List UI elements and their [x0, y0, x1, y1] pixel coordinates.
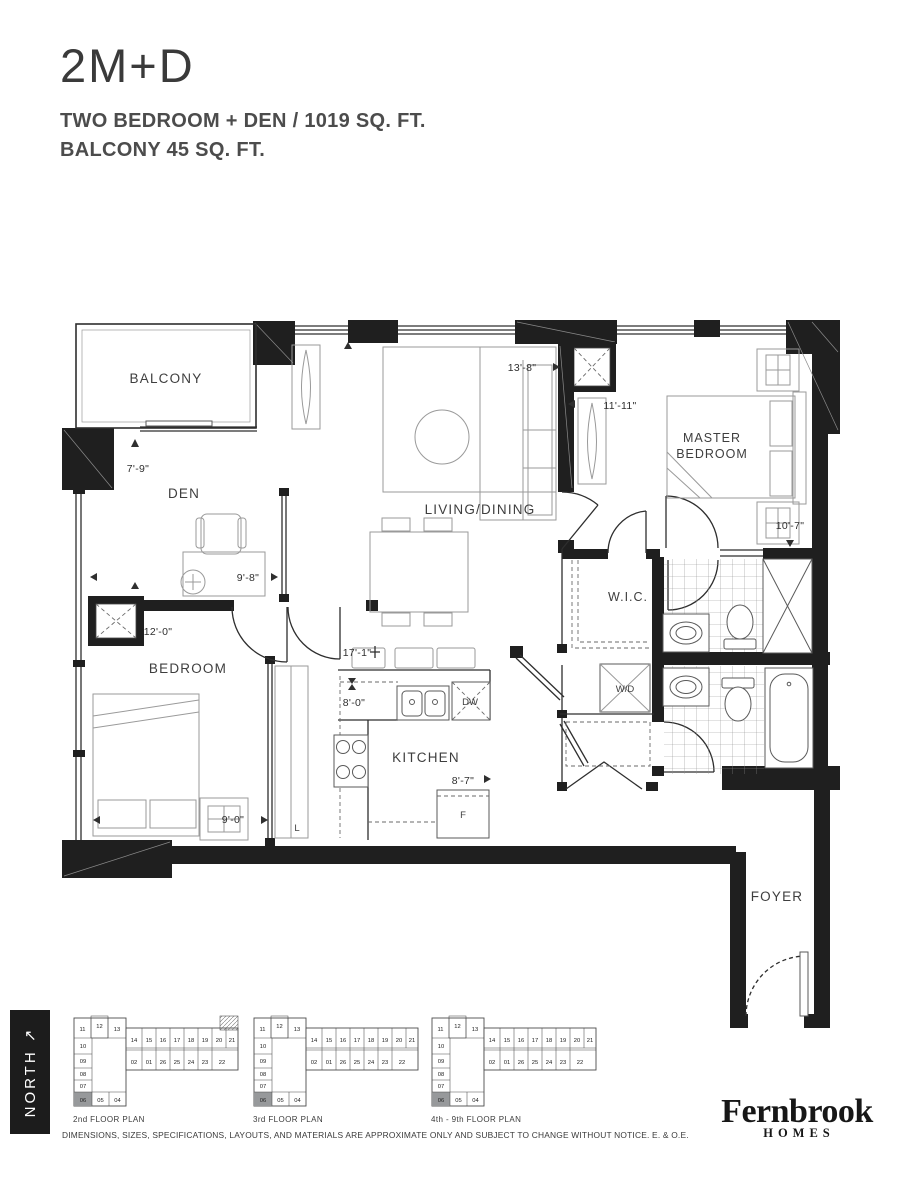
- unit: 17: [354, 1038, 360, 1044]
- kitchen-counter: [334, 648, 490, 840]
- unit: 07: [260, 1084, 266, 1090]
- unit: 25: [174, 1060, 180, 1066]
- bedroom-door: [232, 607, 287, 662]
- unit: 22: [399, 1060, 405, 1066]
- label-dishwasher: DW: [462, 697, 478, 708]
- unit: 26: [518, 1060, 524, 1066]
- unit: 05: [97, 1098, 103, 1104]
- label-master-line2: BEDROOM: [676, 447, 748, 461]
- unit: 13: [114, 1027, 120, 1033]
- unit: 18: [546, 1038, 552, 1044]
- dim-kitchen-depth: 8'-7": [452, 775, 474, 787]
- keyplan-2nd-floor: 11 12 13 10 09 08 07 06 05 04 14 15 16 1…: [74, 1016, 238, 1106]
- unit: 01: [146, 1060, 152, 1066]
- wic-door: [608, 511, 646, 553]
- unit: 11: [259, 1027, 265, 1033]
- shower: [763, 559, 812, 653]
- unit: 02: [489, 1060, 495, 1066]
- north-indicator: NORTH ↗: [10, 1010, 50, 1134]
- unit: 19: [560, 1038, 566, 1044]
- bedroom-bed: [93, 694, 199, 836]
- unit: 25: [532, 1060, 538, 1066]
- night-table-top: [757, 349, 799, 391]
- unit: 07: [80, 1084, 86, 1090]
- label-fridge: F: [460, 810, 466, 821]
- unit: 11: [437, 1027, 443, 1033]
- unit: 10: [80, 1044, 86, 1050]
- unit: 02: [311, 1060, 317, 1066]
- unit: 22: [219, 1060, 225, 1066]
- unit: 24: [368, 1060, 375, 1066]
- dim-master: 10'-7": [776, 520, 805, 532]
- linen-closet: [265, 656, 308, 846]
- unit: 22: [577, 1060, 583, 1066]
- logo-name: Fernbrook: [721, 1093, 873, 1130]
- unit: 20: [574, 1038, 580, 1044]
- dining-table: [370, 518, 468, 626]
- unit: 19: [202, 1038, 208, 1044]
- kitchen-door: [288, 607, 340, 659]
- label-balcony: BALCONY: [130, 371, 203, 386]
- dim-den: 9'-8": [237, 572, 259, 584]
- balcony-sliding-door: [140, 421, 257, 431]
- keyplan-label-2nd: 2nd FLOOR PLAN: [73, 1115, 145, 1124]
- dim-balcony: 7'-9": [127, 463, 149, 475]
- unit: 05: [455, 1098, 461, 1104]
- floorplan-page: 2M+D TWO BEDROOM + DEN / 1019 SQ. FT. BA…: [0, 0, 918, 1188]
- unit: 01: [504, 1060, 510, 1066]
- ensuite-bath: [663, 559, 812, 653]
- dim-kitchen-width: 8'-0": [343, 697, 365, 709]
- unit: 23: [560, 1060, 566, 1066]
- unit: 20: [216, 1038, 222, 1044]
- unit: 04: [472, 1098, 479, 1104]
- label-wic: W.I.C.: [608, 590, 648, 604]
- unit: 21: [409, 1038, 415, 1044]
- keyplan-3rd-floor: 11 12 13 10 09 08 07 06 05 04 14 15 16 1…: [254, 1016, 418, 1106]
- north-label: NORTH ↗: [22, 1027, 39, 1118]
- dim-living-depth: 11'-11": [603, 400, 636, 412]
- shaft-column: [88, 596, 144, 646]
- coffee-table: [415, 410, 469, 464]
- logo-homes: HOMES: [763, 1126, 835, 1140]
- unit: 24: [188, 1060, 195, 1066]
- label-wd: W/D: [616, 684, 635, 695]
- disclaimer: DIMENSIONS, SIZES, SPECIFICATIONS, LAYOU…: [62, 1130, 689, 1140]
- unit: 09: [260, 1059, 266, 1065]
- unit: 13: [472, 1027, 478, 1033]
- unit: 14: [489, 1038, 496, 1044]
- keyplan-label-3rd: 3rd FLOOR PLAN: [253, 1115, 323, 1124]
- keyplan-4th-9th-floor: 11 12 13 10 09 08 07 06 05 04 14 15 16 1…: [432, 1016, 596, 1106]
- unit: 16: [518, 1038, 524, 1044]
- unit: 11: [79, 1027, 85, 1033]
- unit: 06: [260, 1098, 266, 1104]
- label-master-line1: MASTER: [683, 431, 741, 445]
- unit: 05: [277, 1098, 283, 1104]
- label-foyer: FOYER: [751, 889, 804, 904]
- master-door: [666, 496, 718, 548]
- unit: 23: [382, 1060, 388, 1066]
- label-den: DEN: [168, 486, 200, 501]
- entry-door: [746, 952, 808, 1016]
- floorplan-drawing: BALCONY DEN LIVING/DINING MASTER BEDROOM…: [0, 0, 918, 1188]
- bathtub: [765, 668, 813, 768]
- label-linen: L: [294, 823, 299, 834]
- den-right-wall: [279, 488, 289, 602]
- unit: 25: [354, 1060, 360, 1066]
- unit: 26: [160, 1060, 166, 1066]
- column-shaft: [568, 342, 616, 392]
- unit: 08: [438, 1072, 444, 1078]
- wic-interior: [572, 560, 650, 648]
- unit: 19: [382, 1038, 388, 1044]
- unit: 14: [311, 1038, 318, 1044]
- unit: 07: [438, 1084, 444, 1090]
- unit: 12: [96, 1024, 102, 1030]
- unit: 26: [340, 1060, 346, 1066]
- stove: [334, 735, 368, 787]
- unit: 15: [504, 1038, 510, 1044]
- unit: 21: [587, 1038, 593, 1044]
- kitchen-sink: [397, 686, 449, 720]
- unit: 12: [454, 1024, 460, 1030]
- dim-living-width: 13'-8": [508, 362, 537, 374]
- dim-kitchen-run: 17'-1": [343, 647, 372, 659]
- unit: 12: [276, 1024, 282, 1030]
- unit: 01: [326, 1060, 332, 1066]
- unit: 17: [174, 1038, 180, 1044]
- unit: 06: [80, 1098, 86, 1104]
- unit: 02: [131, 1060, 137, 1066]
- label-bedroom: BEDROOM: [149, 661, 227, 676]
- unit: 08: [80, 1072, 86, 1078]
- terrace-hatch: [220, 1016, 238, 1030]
- unit: 16: [340, 1038, 346, 1044]
- unit: 18: [188, 1038, 194, 1044]
- fernbrook-logo: Fernbrook HOMES: [721, 1093, 873, 1140]
- dim-bedroom-width: 12'-0": [144, 626, 173, 638]
- unit: 08: [260, 1072, 266, 1078]
- unit: 10: [260, 1044, 266, 1050]
- unit: 15: [146, 1038, 152, 1044]
- unit: 23: [202, 1060, 208, 1066]
- unit: 15: [326, 1038, 332, 1044]
- tall-window-master: [578, 398, 606, 484]
- unit: 09: [80, 1059, 86, 1065]
- label-kitchen: KITCHEN: [392, 750, 460, 765]
- unit: 21: [229, 1038, 235, 1044]
- bath-vanity: [663, 668, 709, 706]
- unit: 06: [438, 1098, 444, 1104]
- unit: 10: [438, 1044, 444, 1050]
- main-bath: [663, 666, 813, 774]
- unit: 17: [532, 1038, 538, 1044]
- label-living-dining: LIVING/DINING: [425, 502, 536, 517]
- unit: 09: [438, 1059, 444, 1065]
- unit: 18: [368, 1038, 374, 1044]
- unit: 04: [114, 1098, 121, 1104]
- unit: 24: [546, 1060, 553, 1066]
- keyplan-label-4th-9th: 4th - 9th FLOOR PLAN: [431, 1115, 521, 1124]
- dim-bedroom-depth: 9'-0": [222, 814, 244, 826]
- unit: 20: [396, 1038, 402, 1044]
- left-window-wall: [73, 486, 85, 840]
- unit: 04: [294, 1098, 301, 1104]
- unit: 14: [131, 1038, 138, 1044]
- unit: 13: [294, 1027, 300, 1033]
- ensuite-vanity: [663, 614, 709, 652]
- tall-window-den: [292, 345, 320, 429]
- unit: 16: [160, 1038, 166, 1044]
